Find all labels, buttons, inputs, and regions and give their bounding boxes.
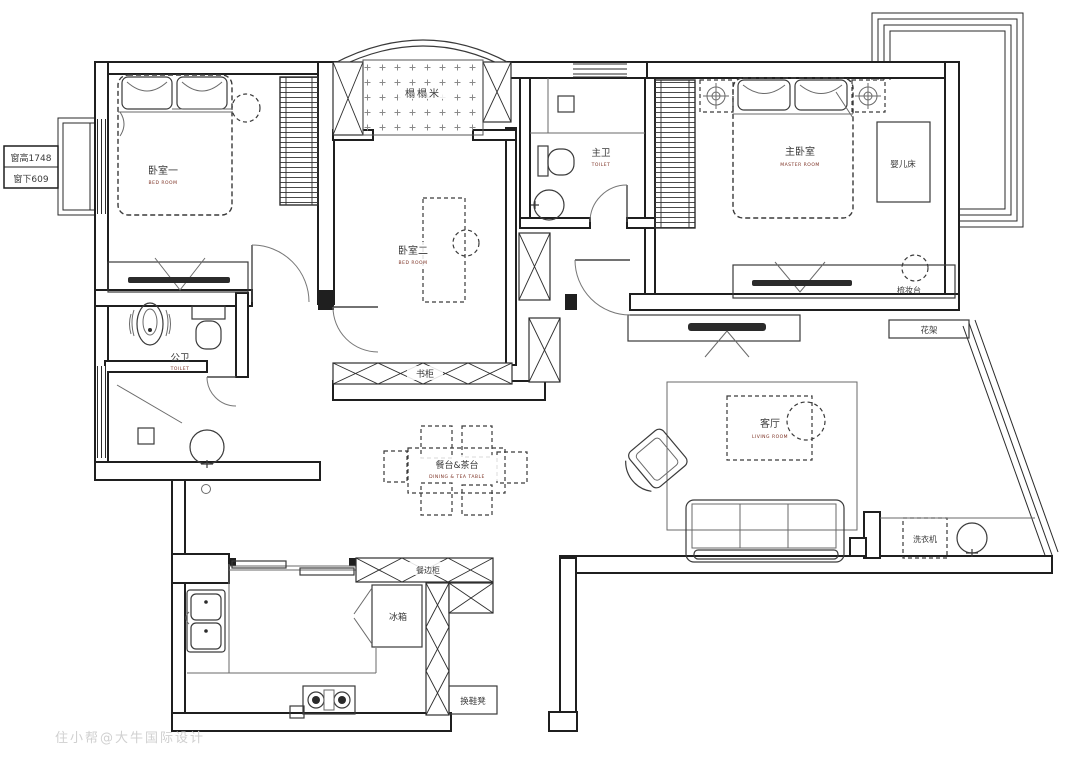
master-bedroom-sublabel: MASTER ROOM bbox=[780, 162, 820, 168]
sideboard-cabinet: 餐边柜 bbox=[356, 558, 493, 582]
armchair bbox=[617, 427, 689, 498]
living-room: 客厅 LIVING ROOM bbox=[617, 315, 857, 562]
dining-set: 餐台&茶台 DINING & TEA TABLE bbox=[384, 426, 527, 515]
window-note-line2: 窗下609 bbox=[13, 173, 48, 185]
washing-machine-label: 洗衣机 bbox=[913, 534, 937, 544]
tatami-label: 榻榻米 bbox=[405, 87, 441, 100]
dining-table-sublabel: DINING & TEA TABLE bbox=[429, 474, 485, 480]
bedroom2-label: 卧室二 bbox=[398, 244, 428, 257]
floor-plan-canvas: 榻榻米 卧室一 BED ROOM 卧室二 BED ROOM bbox=[0, 0, 1080, 768]
watermark: 住小帮@大牛国际设计 bbox=[55, 731, 205, 746]
bedroom2-sublabel: BED ROOM bbox=[399, 260, 428, 266]
bay-window-left bbox=[58, 118, 95, 215]
sideboard-label: 餐边柜 bbox=[416, 565, 440, 575]
dressing-table-label: 梳妆台 bbox=[897, 285, 921, 295]
master-bath: 主卫 TOILET bbox=[530, 78, 645, 220]
living-room-label: 客厅 bbox=[760, 417, 780, 430]
baby-crib-label: 婴儿床 bbox=[890, 159, 916, 170]
tatami-bay: 榻榻米 bbox=[333, 40, 511, 135]
dressing-table: 梳妆台 bbox=[733, 255, 955, 298]
fridge-label: 冰箱 bbox=[389, 611, 407, 623]
window-note-line1: 窗高1748 bbox=[11, 152, 52, 164]
flower-rack-label: 花架 bbox=[920, 325, 938, 336]
living-room-sublabel: LIVING ROOM bbox=[752, 434, 788, 440]
public-bath-label: 公卫 bbox=[170, 353, 190, 364]
shoe-bench-label: 换鞋凳 bbox=[460, 696, 486, 707]
fridge: 冰箱 bbox=[354, 585, 422, 647]
master-bath-label: 主卫 bbox=[591, 147, 611, 159]
balcony-slanted-window bbox=[963, 320, 1058, 558]
public-bath-sublabel: TOILET bbox=[170, 366, 190, 372]
floor-plan-drawing: 榻榻米 卧室一 BED ROOM 卧室二 BED ROOM bbox=[0, 0, 1080, 768]
bedroom1-sublabel: BED ROOM bbox=[149, 180, 178, 186]
bedroom2: 卧室二 BED ROOM 书柜 bbox=[333, 198, 512, 384]
shoe-cabinet-column bbox=[426, 583, 493, 715]
master-bath-sublabel: TOILET bbox=[591, 162, 611, 168]
kitchen: 冰箱 餐边柜 换鞋凳 bbox=[186, 558, 497, 718]
sofa bbox=[686, 500, 844, 562]
flower-rack: 花架 bbox=[889, 320, 969, 338]
dining-table-label: 餐台&茶台 bbox=[435, 459, 478, 471]
bookcase-cabinet: 书柜 bbox=[333, 363, 512, 384]
hallway-columns bbox=[519, 233, 560, 382]
window-annotation: 窗高1748 窗下609 bbox=[4, 146, 58, 188]
shoe-bench: 换鞋凳 bbox=[449, 686, 497, 714]
bedroom1: 卧室一 BED ROOM bbox=[108, 75, 318, 292]
master-bedroom: 主卧室 MASTER ROOM 婴儿床 梳妆台 bbox=[655, 78, 955, 298]
bedroom1-label: 卧室一 bbox=[148, 164, 178, 177]
bookcase-label: 书柜 bbox=[416, 368, 434, 380]
laundry-area: 洗衣机 bbox=[880, 518, 1035, 558]
master-bedroom-label: 主卧室 bbox=[785, 145, 815, 158]
kitchen-sliding-door bbox=[229, 561, 356, 575]
